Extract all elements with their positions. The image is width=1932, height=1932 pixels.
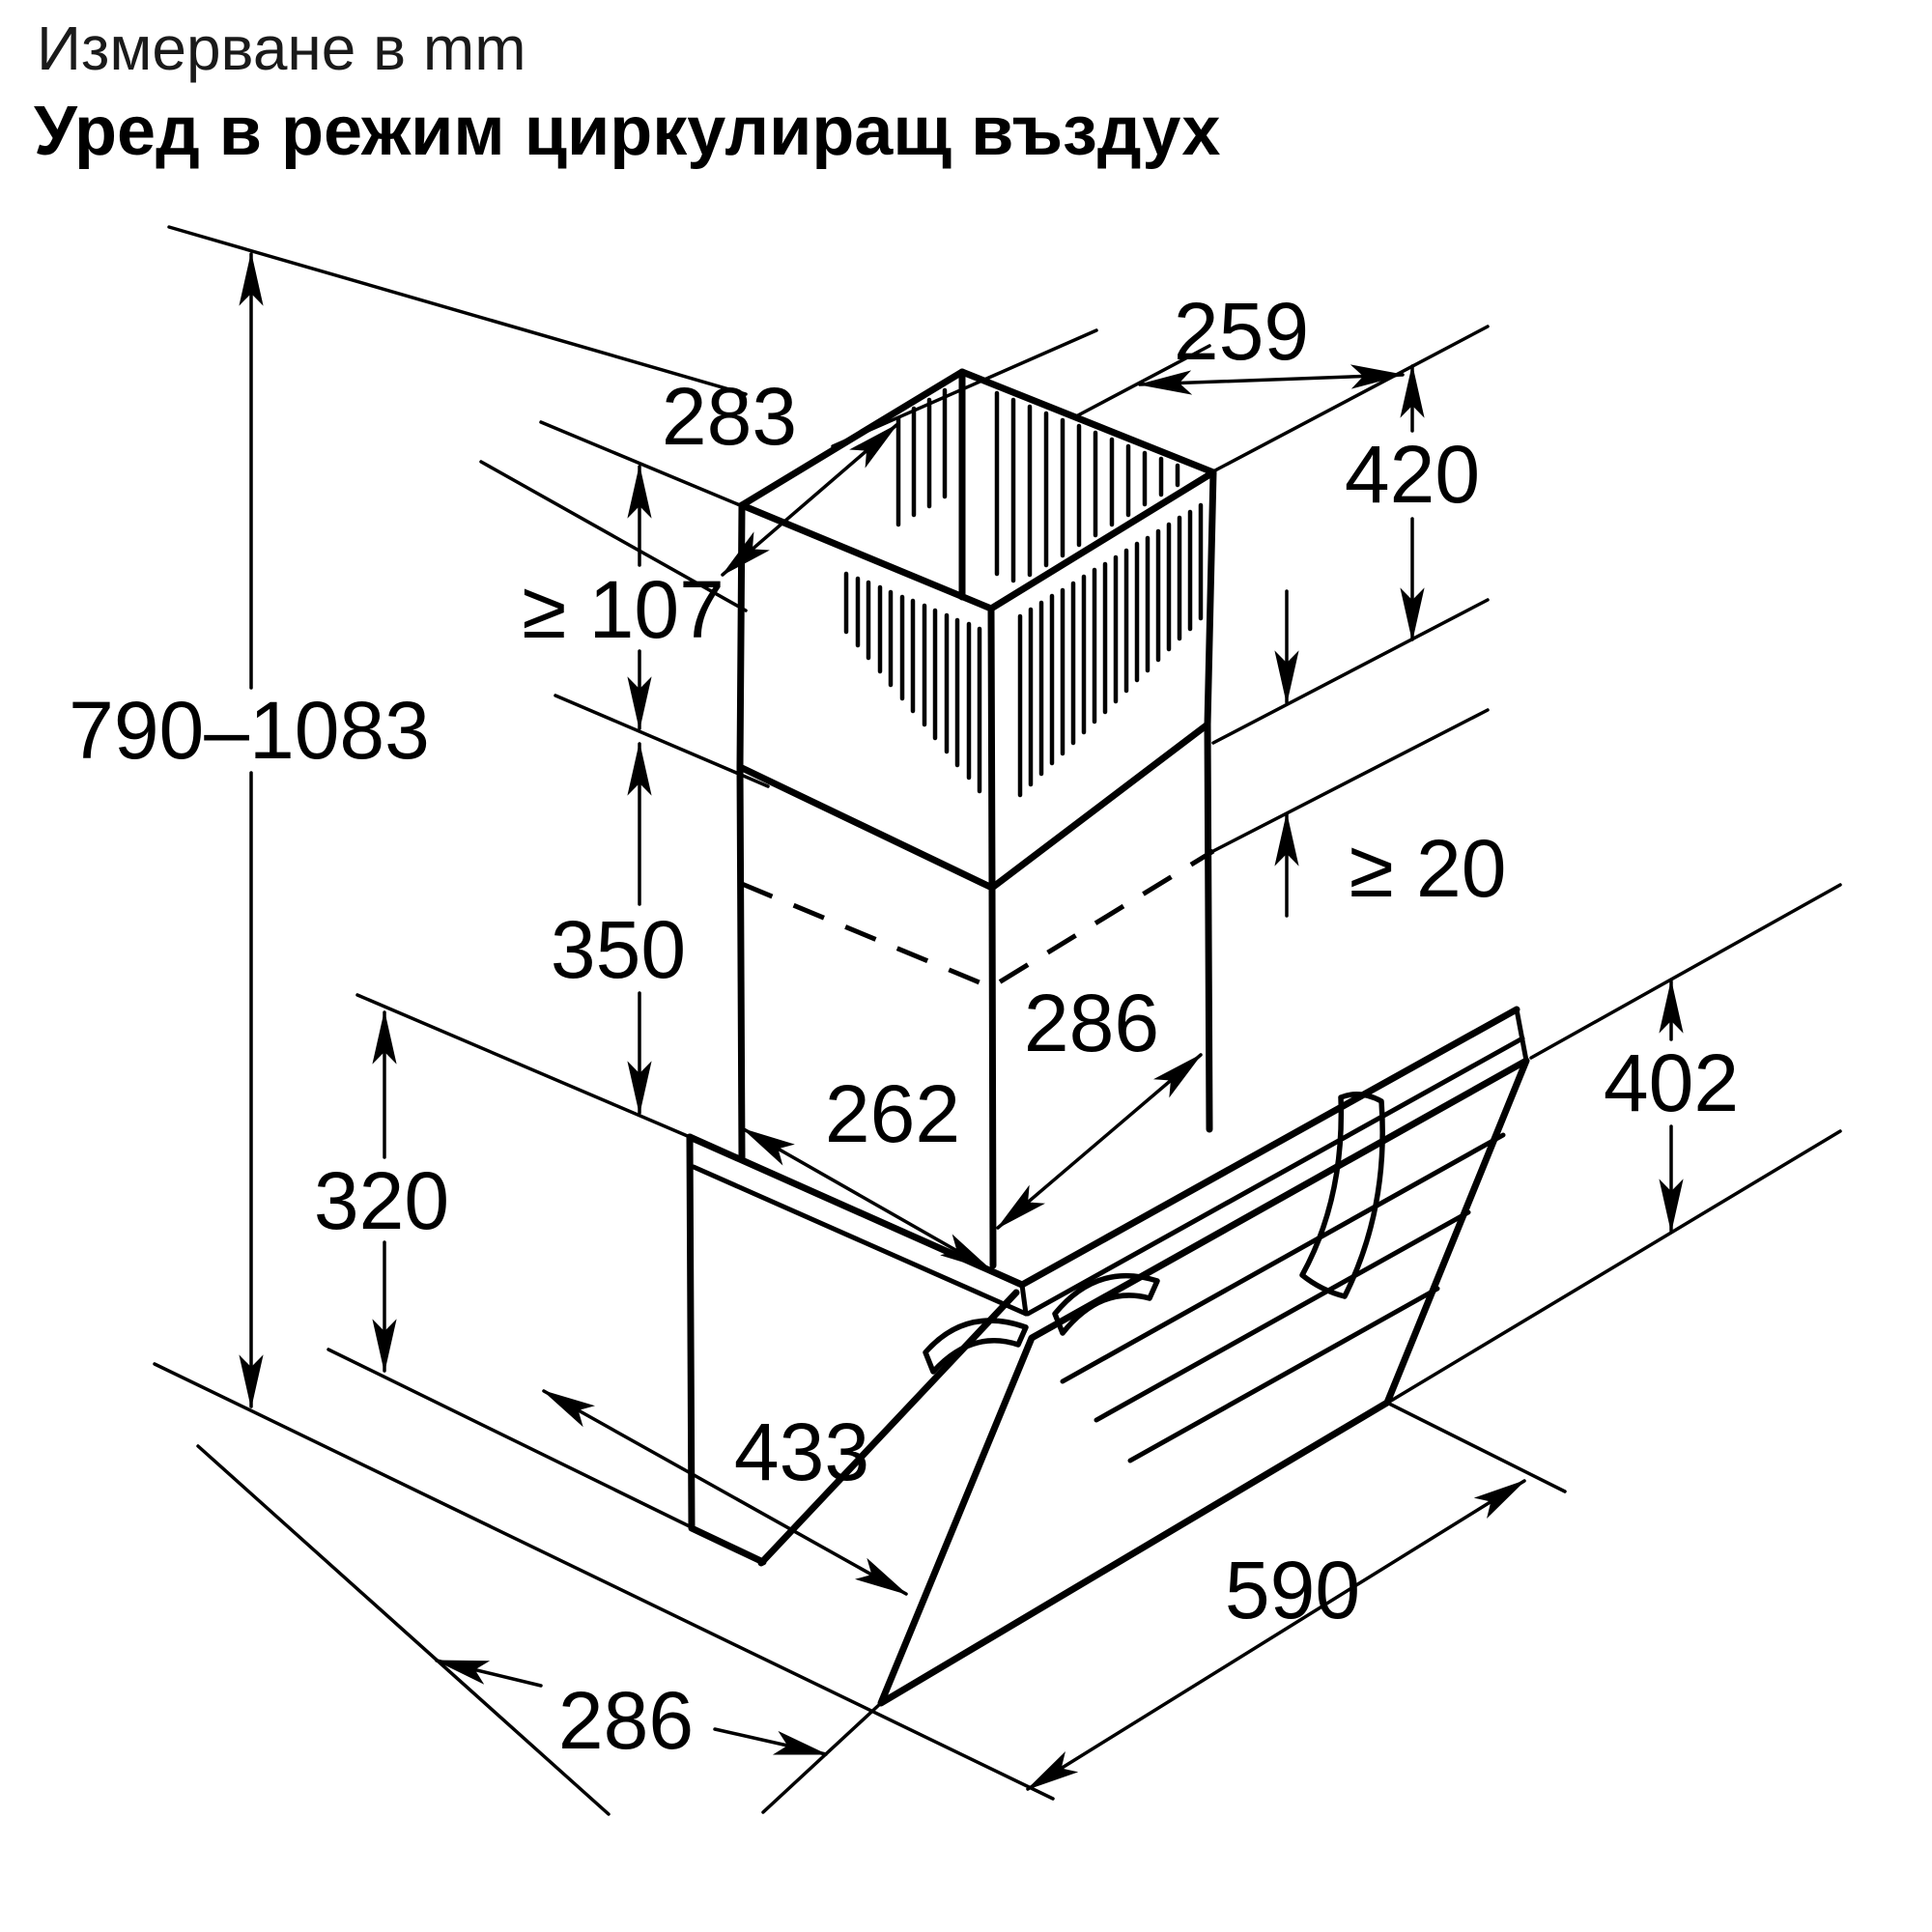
dim-label-283: 283: [662, 371, 797, 462]
hidden-duct-edge: [742, 851, 1213, 987]
dim-label-402: 402: [1604, 1037, 1739, 1128]
dim-label-420: 420: [1345, 429, 1480, 520]
dim-label-790-1083: 790–1083: [69, 685, 430, 776]
dim-label-min107: ≥ 107: [522, 564, 724, 655]
hood-dimension-diagram: Измерване в mm Уред в режим циркулиращ в…: [0, 0, 1932, 1932]
dim-label-350: 350: [551, 904, 686, 995]
title-appliance-mode: Уред в режим циркулиращ въздух: [34, 93, 1220, 170]
dim-label-286-chimney: 286: [1024, 978, 1159, 1068]
dim-label-259: 259: [1174, 286, 1309, 377]
vent-slats-left-face: [846, 574, 980, 791]
chimney-upper-sleeve: [740, 372, 1213, 888]
dim-label-286-bottom: 286: [558, 1675, 694, 1766]
title-measurement-units: Измерване в mm: [37, 14, 526, 83]
dim-label-590: 590: [1225, 1545, 1360, 1635]
dim-label-min20: ≥ 20: [1350, 823, 1507, 914]
dim-label-320: 320: [314, 1155, 449, 1246]
glass-panel: [881, 1061, 1526, 1703]
dim-label-433: 433: [734, 1406, 869, 1497]
dimension-drawing-page: Измерване в mm Уред в режим циркулиращ в…: [0, 0, 1932, 1932]
dim-label-262: 262: [825, 1068, 960, 1159]
